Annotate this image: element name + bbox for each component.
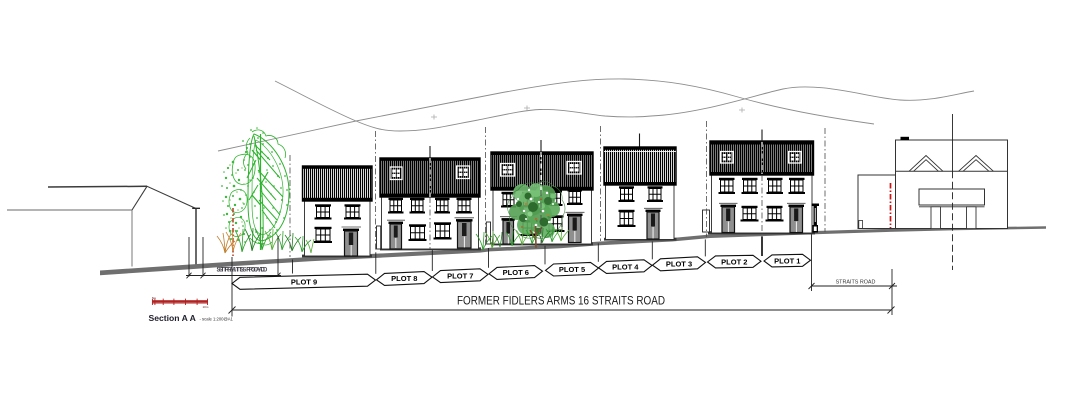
svg-text:PLOT 9: PLOT 9	[291, 277, 317, 286]
svg-text:Section A A: Section A A	[149, 313, 196, 323]
svg-text:PLOT 1: PLOT 1	[774, 256, 800, 265]
svg-text:STRAITS ROAD: STRAITS ROAD	[836, 280, 876, 286]
svg-text:PLOT 5: PLOT 5	[559, 265, 585, 274]
svg-text:PLOT 6: PLOT 6	[503, 268, 529, 277]
svg-text:STRAITS ROAD: STRAITS ROAD	[219, 267, 268, 273]
svg-text:5m: 5m	[152, 296, 157, 300]
svg-text:PLOT 7: PLOT 7	[447, 271, 473, 280]
svg-text:PLOT 8: PLOT 8	[391, 274, 417, 283]
svg-text:PLOT 3: PLOT 3	[666, 260, 692, 269]
svg-text:PLOT 4: PLOT 4	[612, 262, 639, 271]
svg-text:PLOT 2: PLOT 2	[721, 257, 747, 266]
svg-text:- scale 1:200@A1: - scale 1:200@A1	[200, 317, 234, 322]
svg-text:FORMER FIDLERS ARMS 16 STRAITS: FORMER FIDLERS ARMS 16 STRAITS ROAD	[457, 293, 665, 307]
svg-text:10m: 10m	[203, 305, 209, 309]
